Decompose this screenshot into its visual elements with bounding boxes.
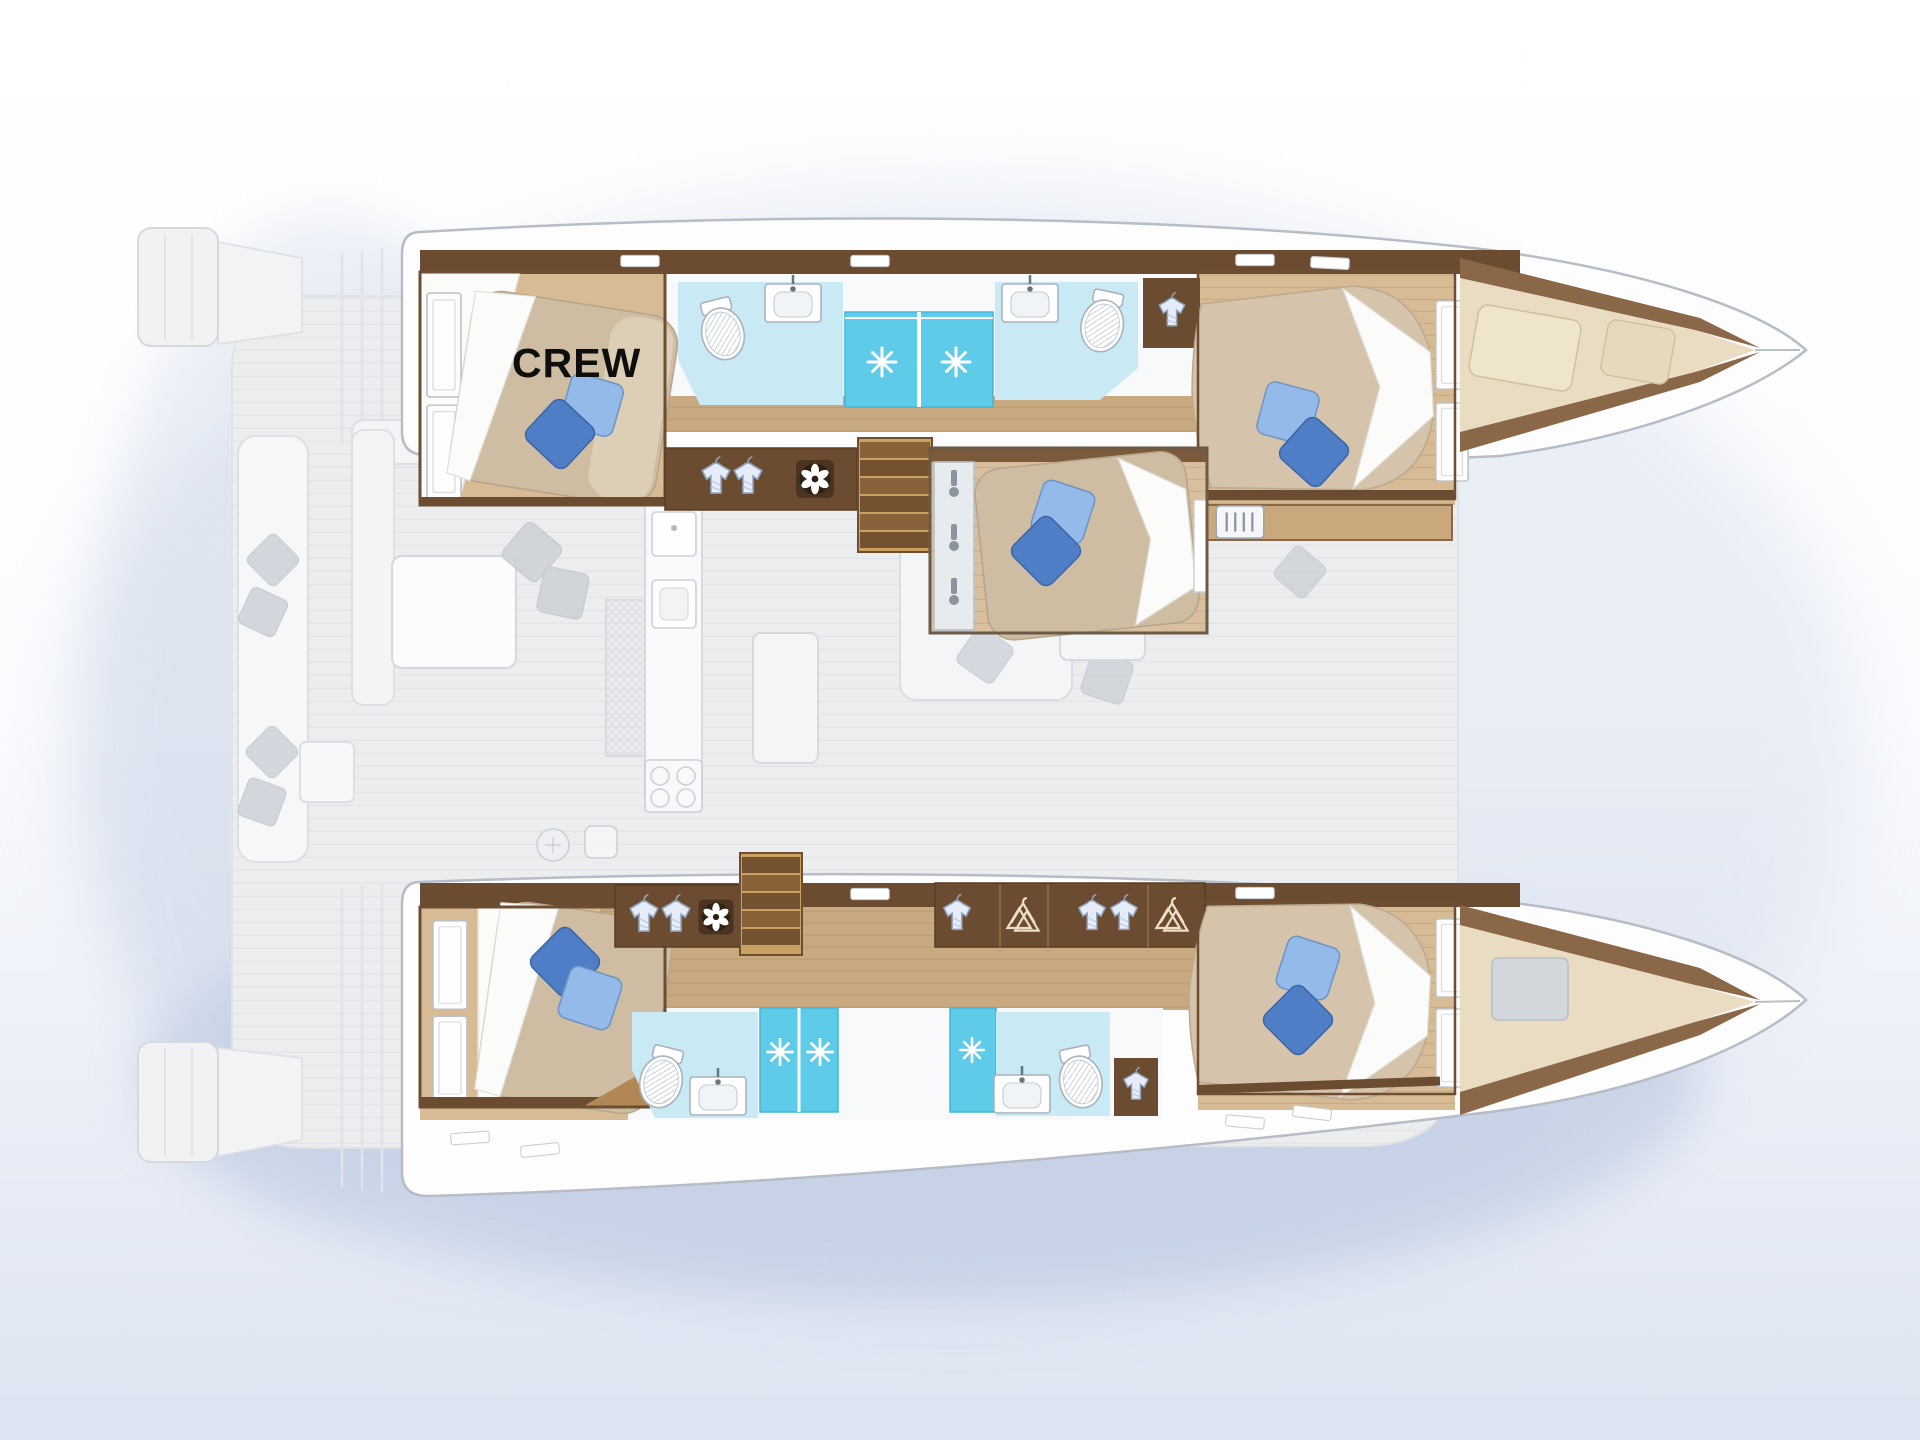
master-berth bbox=[973, 449, 1202, 642]
master-cabin bbox=[930, 448, 1207, 642]
shower-sparkle-icon bbox=[767, 1039, 792, 1064]
salon-table bbox=[392, 556, 516, 668]
swim-platform-starboard bbox=[138, 1042, 218, 1162]
port-showers bbox=[845, 274, 993, 407]
transom-connector-starboard bbox=[218, 1048, 302, 1156]
port-hull-trim bbox=[420, 250, 1520, 274]
wardrobe-door bbox=[433, 1016, 467, 1099]
galley-stove bbox=[645, 760, 702, 812]
swim-platform-port bbox=[138, 228, 218, 346]
port-aft-bathroom bbox=[678, 275, 843, 405]
shower-sparkle-icon bbox=[807, 1039, 832, 1064]
crew-berth bbox=[446, 287, 681, 509]
starboard-aft-bathroom bbox=[632, 1008, 838, 1118]
master-rail bbox=[934, 462, 974, 630]
companionway-stairs bbox=[858, 438, 932, 552]
cockpit-side-table bbox=[300, 742, 354, 802]
shower-sparkle-icon bbox=[868, 348, 896, 376]
salon-cabinet bbox=[753, 633, 818, 763]
shower-sparkle-icon bbox=[942, 348, 970, 376]
stbd-wardrobe-row bbox=[935, 883, 1205, 947]
wardrobe-door bbox=[427, 293, 461, 397]
transom-connector-port bbox=[218, 242, 302, 344]
shower-sparkle-icon bbox=[960, 1038, 984, 1062]
floor-plan-svg: CREW bbox=[0, 0, 1920, 1440]
ventilation-fan-icon bbox=[796, 460, 834, 498]
salon-sofa-side bbox=[352, 430, 394, 705]
bow-hatch bbox=[1492, 958, 1568, 1020]
master-window bbox=[1194, 500, 1207, 592]
air-vent-grille-icon bbox=[1216, 506, 1264, 538]
crew-label: CREW bbox=[512, 340, 641, 386]
wardrobe-door bbox=[433, 921, 467, 1009]
companionway-stairs bbox=[740, 853, 802, 955]
catamaran-floor-plan: CREW bbox=[0, 0, 1920, 1440]
louver-hatch bbox=[606, 600, 650, 756]
ventilation-fan-icon bbox=[699, 900, 734, 935]
port-vent-band bbox=[1207, 505, 1452, 540]
